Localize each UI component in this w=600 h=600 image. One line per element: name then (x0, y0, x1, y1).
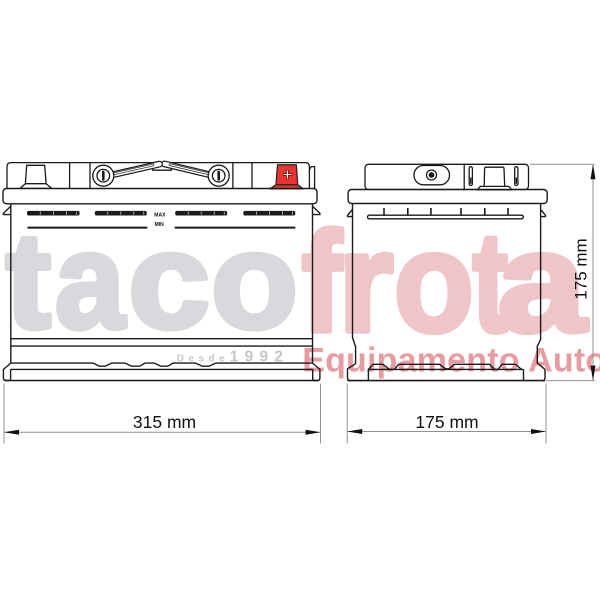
svg-text:f: f (302, 203, 343, 361)
svg-text:175 mm: 175 mm (572, 238, 591, 299)
svg-text:r: r (338, 203, 393, 362)
svg-text:175 mm: 175 mm (415, 412, 478, 432)
svg-text:MAX: MAX (154, 212, 166, 218)
svg-text:MIN: MIN (155, 222, 165, 228)
svg-text:o: o (394, 202, 474, 361)
svg-text:315 mm: 315 mm (133, 412, 196, 432)
